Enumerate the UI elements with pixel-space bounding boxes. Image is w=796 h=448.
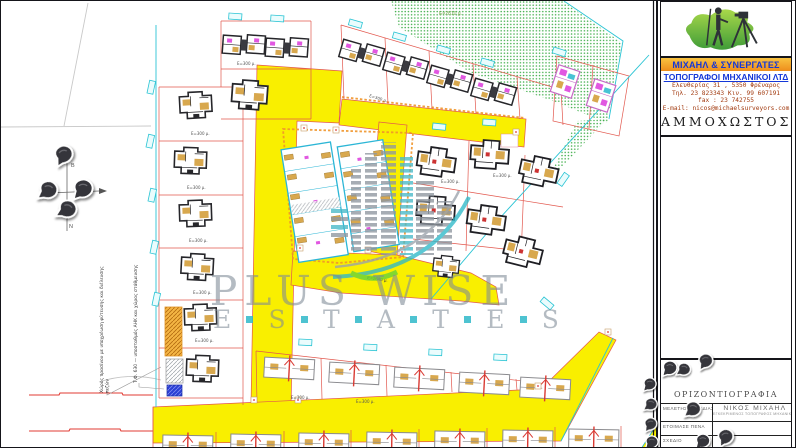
svg-text:Ε=300 μ.: Ε=300 μ. <box>189 238 208 243</box>
firm-name: ΜΙΧΑΗΛ & ΣΥΝΕΡΓΑΤΕΣ <box>672 60 779 70</box>
north-arrow-icon: Β Δ Ν <box>42 153 107 231</box>
svg-text:Β: Β <box>71 163 75 169</box>
green-area-label: Ε=2810 μ. <box>439 11 462 17</box>
svg-text:Ν: Ν <box>69 224 73 230</box>
rotated-note-1: Χώρος πρασίνου με υποχρέωση φύτευσης και… <box>100 251 113 393</box>
firm-email: E-mail: nicos@michaelsurveyors.com <box>661 105 791 113</box>
offsite-road-lines <box>29 393 153 431</box>
designer-title: ΕΓΚΕΚΡΙΜΕΝΟΣ ΤΟΠΟΓΡΑΦΟΣ ΜΗΧΑΝΙΚΟΣ <box>713 412 792 416</box>
svg-text:Δ: Δ <box>42 194 46 200</box>
rotated-note-2: Τ.Φ. 630 — υποσταθμός ΑΗΚ και χώρος στάθ… <box>134 257 147 383</box>
watermark-square-icon <box>464 316 471 323</box>
drawing-notes-box <box>660 136 792 359</box>
surveyor-logo-box <box>660 1 792 57</box>
drawing-title-box: ΟΡΙΖΟΝΤΙΟΓΡΑΦΙΑ ΜΕΛΕΤΗΣΕ-ΣΧΕΔΙΑΣΕ ΝΙΚΟΣ … <box>660 359 792 448</box>
watermark-letter: S <box>269 305 286 334</box>
svg-text:Ε=300 μ.: Ε=300 μ. <box>441 179 460 184</box>
watermark-square-icon <box>520 316 527 323</box>
row-label: ΣΧΕΔΙΟ <box>661 436 713 448</box>
firm-city: ΑΜΜΟΧΩΣΤΟΣ <box>661 114 791 129</box>
watermark-square-icon <box>301 316 308 323</box>
surveyor-logo-icon <box>666 3 786 55</box>
site-plan-map: Ε=2810 μ. <box>1 1 656 448</box>
row-label: ΜΕΛΕΤΗΣΕ-ΣΧΕΔΙΑΣΕ <box>661 404 713 421</box>
svg-text:Ε=300 μ.: Ε=300 μ. <box>237 61 256 66</box>
title-block-panel: ΜΙΧΑΗΛ & ΣΥΝΕΡΓΑΤΕΣ ΤΟΠΟΓΡΑΦΟΙ ΜΗΧΑΝΙΚΟΙ… <box>656 1 796 448</box>
table-row: ΜΕΛΕΤΗΣΕ-ΣΧΕΔΙΑΣΕ ΝΙΚΟΣ ΜΙΧΑΗΛ ΕΓΚΕΚΡΙΜΕ… <box>661 404 791 422</box>
watermark-square-icon <box>246 316 253 323</box>
firm-info-box: ΜΙΧΑΗΛ & ΣΥΝΕΡΓΑΤΕΣ ΤΟΠΟΓΡΑΦΟΙ ΜΗΧΑΝΙΚΟΙ… <box>660 57 792 136</box>
firm-address: Ελευθερίας 31 , 5350 Φρέναρος <box>661 82 791 90</box>
svg-text:Ε=300 μ.: Ε=300 μ. <box>187 185 206 190</box>
svg-text:Ε=300 μ.: Ε=300 μ. <box>195 338 214 343</box>
designer-name: ΝΙΚΟΣ ΜΙΧΑΗΛ <box>713 405 792 412</box>
survey-drawing-canvas: Ε=2810 μ. <box>0 0 796 448</box>
table-row: ΕΤΟΙΜΑΣΕ ΠΕΝΑ <box>661 422 791 436</box>
watermark-square-icon <box>355 316 362 323</box>
watermark-letter: T <box>432 305 449 334</box>
svg-text:Ε=300 μ.: Ε=300 μ. <box>191 131 210 136</box>
watermark-square-icon <box>410 316 417 323</box>
title-table: ΜΕΛΕΤΗΣΕ-ΣΧΕΔΙΑΣΕ ΝΙΚΟΣ ΜΙΧΑΗΛ ΕΓΚΕΚΡΙΜΕ… <box>661 403 791 448</box>
row-value <box>713 436 791 448</box>
row-label: ΕΤΟΙΜΑΣΕ ΠΕΝΑ <box>661 422 713 435</box>
row-value: ΝΙΚΟΣ ΜΙΧΑΗΛ ΕΓΚΕΚΡΙΜΕΝΟΣ ΤΟΠΟΓΡΑΦΟΣ ΜΗΧ… <box>713 404 792 421</box>
firm-fax: fax : 23 742755 <box>661 97 791 105</box>
table-row: ΣΧΕΔΙΟ <box>661 436 791 448</box>
svg-text:Ε=300 μ.: Ε=300 μ. <box>291 395 310 400</box>
firm-phones: Τηλ. 23 823343 Κιν. 99 607191 <box>661 90 791 98</box>
watermark-letter: E <box>486 305 504 334</box>
watermark-letter: A <box>377 305 395 334</box>
svg-text:Ε=300 μ.: Ε=300 μ. <box>356 399 375 404</box>
firm-type: ΤΟΠΟΓΡΑΦΟΙ ΜΗΧΑΝΙΚΟΙ ΛΤΔ <box>661 72 791 82</box>
watermark-letter: E <box>213 305 231 334</box>
watermark-letter: S <box>542 305 559 334</box>
stamp-area <box>661 360 791 387</box>
firm-name-band: ΜΙΧΑΗΛ & ΣΥΝΕΡΓΑΤΕΣ <box>661 58 791 71</box>
row-value <box>713 422 791 435</box>
watermark-estates: ESTATES <box>213 305 559 334</box>
drawing-title: ΟΡΙΖΟΝΤΙΟΓΡΑΦΙΑ <box>661 387 791 403</box>
watermark-letter: T <box>323 305 340 334</box>
svg-text:Ε=300 μ.: Ε=300 μ. <box>493 173 512 178</box>
